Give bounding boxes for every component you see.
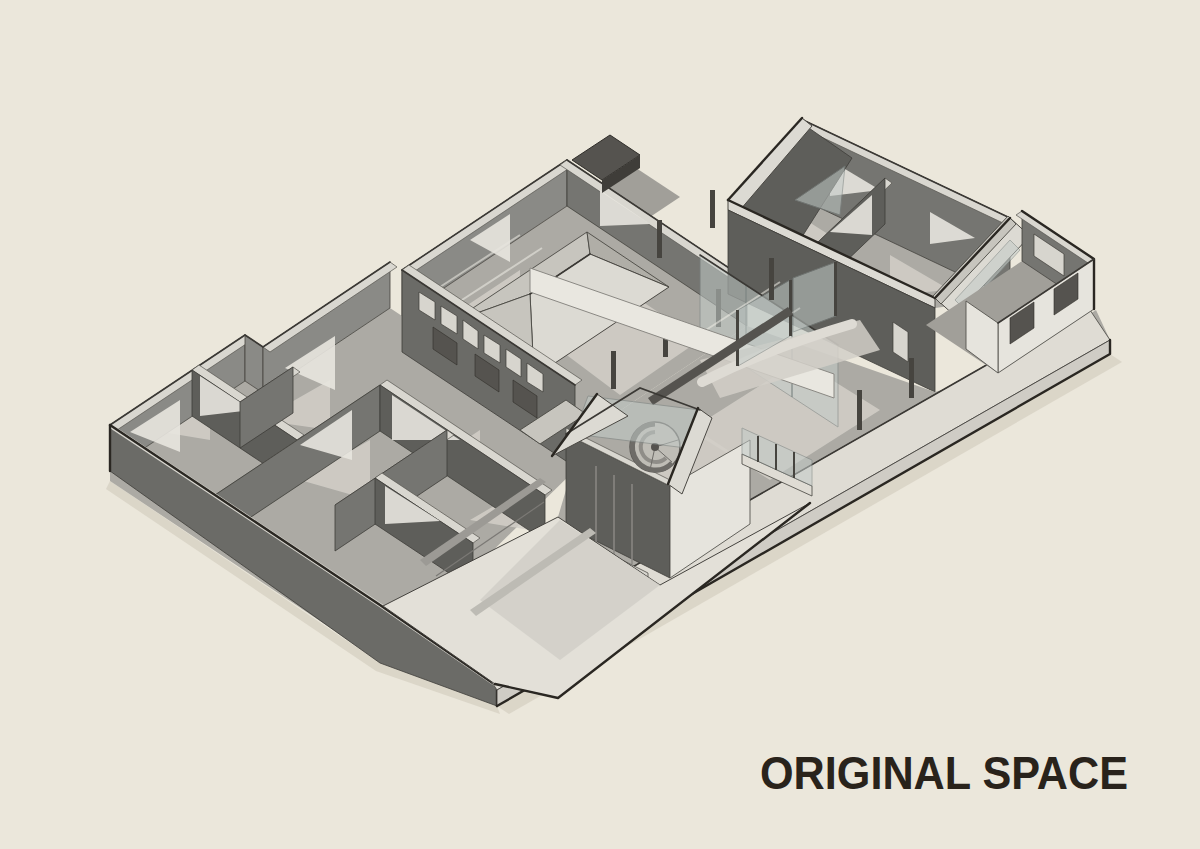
title-label: ORIGINAL SPACE [760, 746, 1128, 799]
page: { "title": { "text": "ORIGINAL SPACE" },… [0, 0, 1200, 849]
axonometric-illustration: ORIGINAL SPACE [0, 0, 1200, 849]
